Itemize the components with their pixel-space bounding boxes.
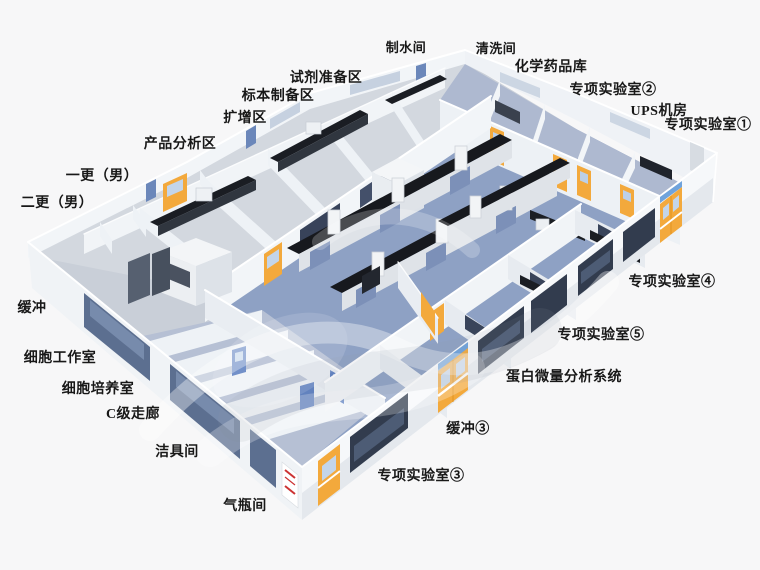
label-specimen-prep: 标本制备区 [241, 87, 315, 104]
label-reagent-prep: 试剂准备区 [290, 69, 363, 86]
label-washing-room: 清洗间 [476, 41, 517, 56]
label-second-change-male: 二更（男） [21, 195, 94, 211]
label-special-lab-3: 专项实验室③ [378, 467, 465, 484]
label-amplification: 扩增区 [223, 109, 267, 126]
yellow-door-icon [577, 165, 591, 201]
label-cell-workroom: 细胞工作室 [24, 349, 97, 366]
label-buffer-3: 缓冲③ [446, 420, 490, 437]
label-buffer: 缓冲 [18, 299, 47, 316]
reagent-shelf [392, 178, 404, 202]
lab-floorplan-render: 制水间 清洗间 化学药品库 专项实验室② UPS机房 专项实验室① 试剂准备区 … [0, 0, 760, 570]
yellow-door-icon [620, 184, 634, 219]
label-special-lab-5: 专项实验室⑤ [558, 326, 645, 343]
reagent-shelf [470, 196, 481, 218]
server-rack [152, 247, 170, 296]
label-cell-culture: 细胞培养室 [62, 380, 135, 397]
biosafety-cabinet [160, 238, 232, 306]
label-protein-micro-analysis: 蛋白微量分析系统 [506, 368, 622, 385]
label-class-c-corridor: C级走廊 [106, 405, 160, 422]
label-product-analysis: 产品分析区 [144, 135, 217, 152]
label-special-lab-4: 专项实验室④ [629, 273, 716, 290]
bench-equipment-box [196, 188, 212, 201]
label-chemical-storage: 化学药品库 [515, 58, 588, 75]
bench-equipment-box [306, 122, 321, 134]
label-ups-room: UPS机房 [631, 102, 688, 119]
reagent-shelf [455, 146, 467, 170]
label-gas-cylinder-room: 气瓶间 [222, 497, 267, 514]
label-special-lab-1: 专项实验室① [665, 116, 752, 133]
label-special-lab-2: 专项实验室② [570, 81, 657, 98]
isometric-lab-scene: 制水间 清洗间 化学药品库 专项实验室② UPS机房 专项实验室① 试剂准备区 … [0, 0, 760, 570]
label-cleaning-tool-room: 洁具间 [155, 443, 199, 460]
label-water-room: 制水间 [386, 40, 427, 55]
label-first-change-male: 一更（男） [66, 168, 139, 184]
